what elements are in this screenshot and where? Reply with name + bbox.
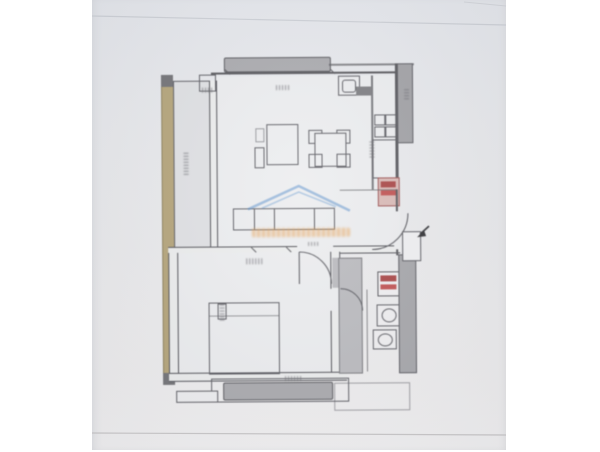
photo-vignette [92,0,506,450]
